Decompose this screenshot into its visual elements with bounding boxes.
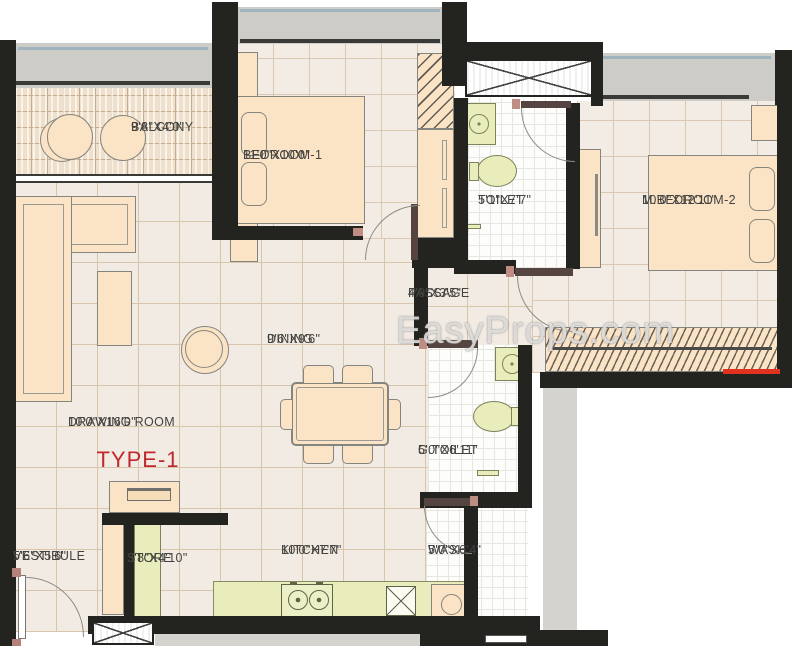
- store-door-leaf: [102, 524, 124, 615]
- red-marker-line: [723, 369, 780, 374]
- door-jamb: [512, 99, 520, 109]
- room-dim: 5'6"X5'6": [13, 549, 66, 564]
- window-sill-line: [16, 81, 210, 85]
- dining-chair: [388, 399, 401, 430]
- door-jamb: [470, 496, 478, 506]
- basin-bowl: [469, 114, 489, 134]
- machine-drum: [441, 594, 462, 615]
- wall-toilet-left: [454, 98, 468, 268]
- room-dim: 3'8"X4'10": [127, 551, 188, 566]
- cabinet-handle: [442, 140, 447, 180]
- balcony-sliding-window: [15, 174, 213, 183]
- cabinet-handle: [442, 188, 447, 228]
- toilet-wc-symbol: [477, 155, 517, 187]
- window-frame-line: [240, 9, 440, 12]
- gtoilet-shelf: [477, 470, 499, 476]
- toilet-accessory: [467, 224, 481, 229]
- kitchen-sink-symbol: [386, 586, 416, 616]
- coffee-table: [97, 271, 132, 346]
- room-dim: 11'0"X10'0": [243, 148, 310, 163]
- stove-knob: [316, 582, 323, 585]
- dining-chair: [303, 445, 334, 464]
- room-dim: 4'9"X3'5": [408, 286, 461, 301]
- dining-chair: [280, 399, 293, 430]
- bedroom1-pillow-2: [241, 162, 267, 206]
- dining-table-inner: [296, 387, 384, 441]
- dining-chair: [303, 365, 334, 384]
- entrance-door-leaf: [18, 575, 26, 639]
- wall-topright-pillar: [775, 50, 792, 105]
- kitchen-counter: [213, 581, 468, 620]
- room-dim: 5'0"X6'4": [428, 543, 481, 558]
- room-dim: 5'1"X7'7": [478, 193, 531, 208]
- room-dim: 10'0"X7'7": [281, 543, 342, 558]
- wall-right: [777, 103, 792, 388]
- wall-balcony-bedroom1: [212, 2, 238, 240]
- round-chair-seat: [185, 330, 223, 368]
- right-chajja-strip: [541, 388, 577, 630]
- dining-chair: [342, 445, 373, 464]
- bottom-window-slit: [485, 635, 527, 643]
- watermark: EasyProps.com: [396, 310, 675, 353]
- bedroom1-window-band: [237, 7, 443, 44]
- bedroom1-cabinet: [417, 129, 454, 238]
- mbedroom2-door-leaf: [515, 268, 573, 276]
- window-frame-line: [603, 56, 771, 59]
- wash-door-leaf: [424, 498, 472, 506]
- stove-burner: [288, 590, 308, 610]
- bottom-chajja-strip: [155, 632, 460, 646]
- entrance-door-post: [12, 568, 21, 577]
- wall-mbedroom2-bottom: [540, 372, 792, 388]
- floor-plan-image: BALCONY 9'8"X4'0" BEDROOM-1 11'0"X10'0" …: [0, 0, 800, 646]
- door-jamb: [353, 228, 363, 236]
- sofa-left-arm: [15, 196, 72, 402]
- entrance-door-post: [12, 639, 21, 646]
- wall-store-divider: [124, 523, 134, 616]
- round-chair: [181, 326, 229, 374]
- toilet-door-leaf: [521, 101, 571, 108]
- mbedroom2-pillow-2: [749, 219, 775, 263]
- room-dim: 9'6"X9'6": [267, 332, 320, 347]
- sofa-cushion-line: [23, 204, 64, 394]
- room-dim: 10'0"X16'0": [68, 415, 136, 430]
- wall-store-top: [102, 513, 228, 525]
- wall-top-bar: [465, 42, 593, 59]
- toilet-wc-tank: [469, 162, 479, 181]
- mbedroom2-pillow-1: [749, 167, 775, 211]
- window-frame-line: [18, 47, 208, 50]
- duct-top: [465, 59, 593, 97]
- dining-table: [291, 382, 389, 446]
- mbedroom2-cabinet: [578, 149, 601, 268]
- duct-bottom: [92, 621, 154, 645]
- tv-symbol: [127, 488, 171, 501]
- room-dim: 9'8"X4'0": [131, 120, 184, 135]
- balcony-window-band: [15, 43, 213, 88]
- balcony-chair-1: [47, 114, 93, 160]
- wall-bedroom1-bottom: [237, 226, 363, 240]
- window-sill-line: [240, 39, 440, 43]
- type-label: TYPE-1: [68, 447, 208, 473]
- mbedroom2-window-band: [600, 53, 775, 101]
- room-dim: 10'0"X12'11": [642, 193, 717, 208]
- window-sill-line: [603, 95, 749, 99]
- dining-chair: [342, 365, 373, 384]
- wall-gtoilet-right: [518, 345, 532, 495]
- gtoilet-wc-symbol: [473, 401, 515, 432]
- mbedroom2-side-table: [751, 105, 778, 141]
- gas-stove-symbol: [281, 584, 333, 617]
- room-dim: 5'0"X6'11": [418, 443, 478, 458]
- tv-unit: [109, 481, 180, 513]
- stove-knob: [290, 582, 297, 585]
- wall-top-pillar: [442, 2, 467, 86]
- cabinet-handle: [595, 174, 598, 236]
- stove-burner: [309, 590, 329, 610]
- door-jamb: [506, 266, 514, 277]
- store-shelf: [134, 523, 161, 618]
